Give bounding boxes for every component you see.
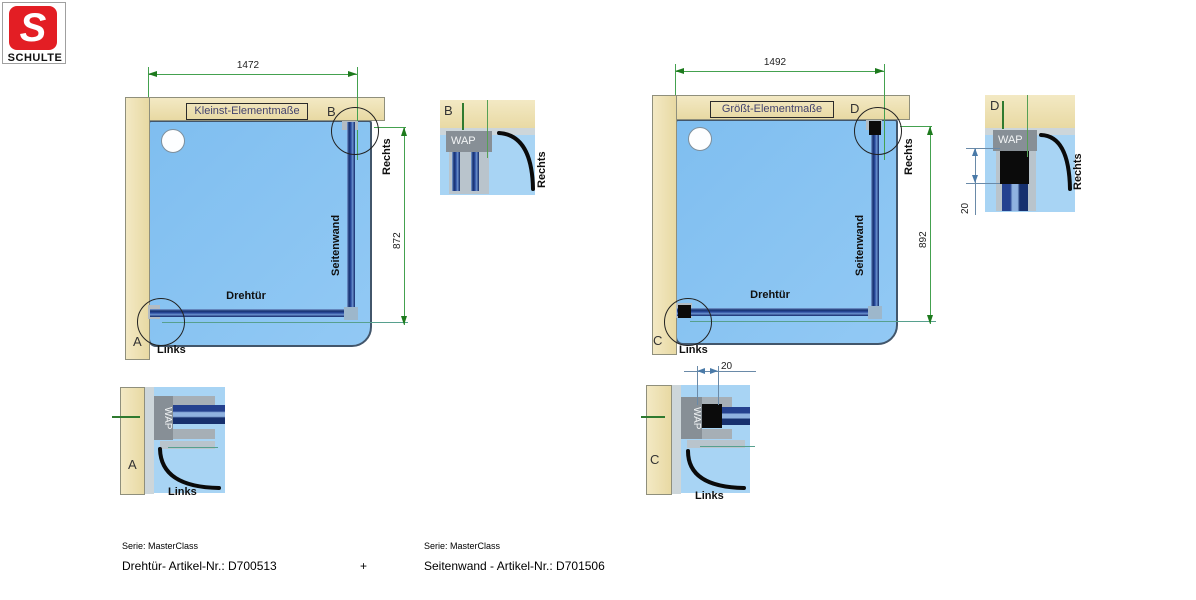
sidewall-label-left-diagram: Seitenwand: [330, 186, 342, 276]
arrow-right-icon: [875, 68, 884, 74]
ext-line: [168, 447, 218, 448]
logo-frame: S SCHULTE: [2, 2, 66, 64]
detail-c-wall: [646, 385, 672, 495]
arrow-up-icon: [401, 127, 407, 136]
title-right-diagram: Größt-Elementmaße: [710, 101, 834, 118]
links-label-detail-c: Links: [695, 490, 724, 502]
door-label-right-diagram: Drehtür: [730, 289, 810, 301]
drain-circle: [161, 129, 185, 153]
detail-letter-d: D: [990, 98, 999, 113]
green-stub: [112, 416, 140, 418]
schulte-logo-icon: S: [9, 6, 57, 50]
green-stub: [641, 416, 665, 418]
dim-height-right: 892: [918, 202, 929, 248]
article-number-sidewall: Seitenwand - Artikel-Nr.: D701506: [424, 559, 605, 573]
detail-a-wall: [120, 387, 145, 495]
detail-c-arm: [702, 429, 732, 439]
detail-circle-a: [137, 298, 185, 346]
arrow-left-icon: [148, 71, 157, 77]
detail-b-profile: [452, 152, 460, 191]
logo-letter: S: [20, 6, 47, 50]
dim-line-height-right: [930, 126, 931, 324]
rechts-label-detail-d: Rechts: [1072, 138, 1084, 190]
corner-connector: [868, 306, 882, 319]
detail-circle-d: [854, 107, 902, 155]
brand-name: SCHULTE: [4, 52, 66, 64]
arrow-left-icon: [697, 368, 705, 374]
rechts-label-detail-b: Rechts: [536, 136, 548, 188]
serie-label-right: Serie: MasterClass: [424, 541, 500, 551]
green-line: [487, 100, 488, 158]
links-label-right-diagram: Links: [679, 344, 708, 356]
arrow-down-icon: [927, 315, 933, 324]
title-left-diagram: Kleinst-Elementmaße: [186, 103, 308, 120]
detail-letter-b: B: [444, 103, 453, 118]
arrow-up-icon: [972, 148, 978, 156]
dim-20-c: 20: [721, 361, 732, 372]
detail-letter-a: A: [128, 457, 137, 472]
ext-line: [690, 321, 936, 322]
corner-letter-a: A: [133, 334, 142, 349]
dim-height-left: 872: [392, 203, 403, 249]
arrow-right-icon: [348, 71, 357, 77]
arrow-right-icon: [710, 368, 718, 374]
corner-letter-c: C: [653, 333, 662, 348]
wap-label-b: WAP: [446, 131, 492, 152]
green-line: [1027, 95, 1028, 157]
ext-line: [966, 183, 1000, 184]
detail-letter-c: C: [650, 452, 659, 467]
door-label-left-diagram: Drehtür: [206, 290, 286, 302]
adjustment-block-detail-c: [700, 404, 722, 428]
plus-sign: +: [360, 559, 367, 573]
sidewall-label-right-diagram: Seitenwand: [854, 186, 866, 276]
wap-label-a: WAP: [154, 396, 173, 440]
detail-d-profile: [1002, 184, 1028, 211]
rechts-label-left-diagram: Rechts: [381, 127, 393, 175]
dim-line-width-left: [148, 74, 357, 75]
detail-a-arm: [173, 429, 215, 439]
drain-circle: [688, 127, 712, 151]
article-number-door: Drehtür- Artikel-Nr.: D700513: [122, 559, 277, 573]
arrow-up-icon: [927, 126, 933, 135]
green-stub: [1002, 101, 1004, 129]
serie-label-left: Serie: MasterClass: [122, 541, 198, 551]
corner-letter-d: D: [850, 101, 859, 116]
detail-a-profile: [173, 405, 225, 424]
arrow-down-icon: [401, 316, 407, 325]
detail-circle-b: [331, 107, 379, 155]
adjustment-block-detail-d: [1000, 151, 1029, 184]
corner-connector: [344, 307, 358, 320]
detail-circle-c: [664, 298, 712, 346]
rechts-label-right-diagram: Rechts: [903, 127, 915, 175]
detail-c-strip: [672, 385, 681, 494]
ext-line: [162, 322, 408, 323]
links-label-detail-a: Links: [168, 486, 197, 498]
detail-b-profile: [471, 152, 479, 191]
dim-line-height-left: [404, 127, 405, 325]
dim-width-right: 1492: [740, 57, 810, 68]
arrow-left-icon: [675, 68, 684, 74]
detail-a-strip: [145, 387, 154, 494]
arrow-down-icon: [972, 175, 978, 183]
dim-20-d: 20: [960, 186, 971, 214]
dim-width-left: 1472: [213, 60, 283, 71]
dim-line-20-c: [684, 371, 756, 372]
ext-line: [700, 446, 755, 447]
wap-label-c: WAP: [681, 397, 702, 439]
dim-line-width-right: [675, 71, 884, 72]
drawing-canvas: S SCHULTE 1472 872 Rechts Kleinst-Elemen…: [0, 0, 1196, 600]
green-stub: [462, 103, 464, 130]
